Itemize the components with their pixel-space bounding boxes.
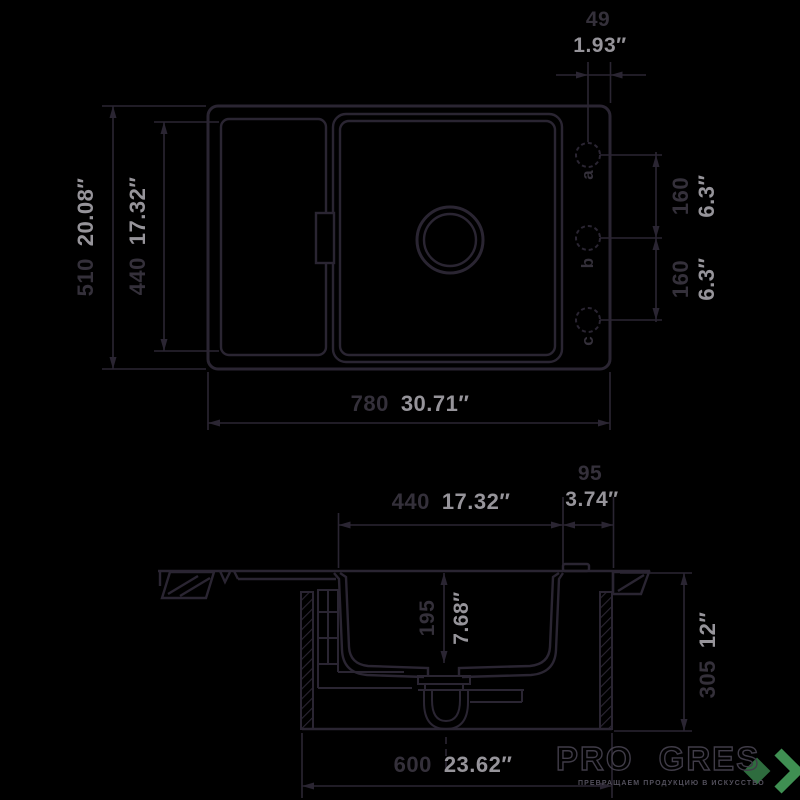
tap-hole-b (576, 226, 600, 250)
ext-lines-305 (614, 573, 692, 731)
drain-trap (418, 668, 524, 729)
dim-195-mm: 195 (411, 591, 445, 644)
dim-305-label: 30512″ (695, 612, 721, 699)
dim-160-bc-mm: 160 (668, 257, 694, 300)
tap-hole-c (576, 308, 600, 332)
drain-circle-outer (417, 207, 483, 273)
sink-outline (208, 106, 610, 369)
dim-600-inch: 23.62″ (444, 752, 513, 777)
dim-305-inch: 12″ (695, 612, 720, 649)
brand-logo-text: PRO GRES (556, 740, 760, 778)
dim-780-inch: 30.71″ (401, 391, 470, 416)
ext-lines-510 (102, 106, 206, 369)
dim-440-section-label: 44017.32″ (392, 489, 511, 515)
plan-view (208, 106, 610, 369)
dim-600-mm: 600 (394, 752, 432, 777)
overflow-tube (318, 590, 412, 688)
tap-hole-a (576, 143, 600, 167)
dim-195-label: 195 7.68″ (411, 591, 479, 644)
dim-600-label: 60023.62″ (394, 752, 513, 778)
dim-160-bc-inch: 6.3″ (694, 257, 720, 300)
dim-49-mm: 49 (586, 8, 610, 32)
dim-95-inch: 3.74″ (565, 488, 618, 512)
overflow-connector (316, 213, 334, 263)
logo-chevron-icon (778, 752, 797, 790)
cabinet-wall-right (600, 592, 612, 729)
tap-hole-b-label: b (578, 258, 598, 268)
dim-440-section-inch: 17.32″ (442, 489, 511, 514)
dim-160-ab-label: 160 6.3″ (668, 174, 720, 217)
drainboard-outline (221, 119, 326, 355)
right-counter-block (613, 572, 649, 594)
dim-160-ab-inch: 6.3″ (694, 174, 720, 217)
drip-groove (220, 571, 230, 582)
dim-160-bc-label: 160 6.3″ (668, 257, 720, 300)
tap-hole-a-label: a (578, 170, 598, 179)
dim-780-mm: 780 (351, 391, 389, 416)
dim-440-plan-inch: 17.32″ (125, 177, 150, 246)
sink-technical-drawing: 49 1.93″ 51020.08″ 44017.32″ 78030.71″ 1… (0, 0, 800, 800)
dim-160-ab-mm: 160 (668, 174, 694, 217)
dim-49-inch: 1.93″ (573, 34, 626, 58)
trap-outer (424, 690, 468, 729)
faucet-boss (563, 564, 589, 571)
brand-tagline: ПРЕВРАЩАЕМ ПРОДУКЦИЮ В ИСКУССТВО (578, 780, 765, 787)
dim-95-mm: 95 (578, 462, 602, 486)
plan-view-arrowheads (110, 72, 660, 427)
cabinet-wall-left (301, 592, 313, 729)
trap-inner (432, 690, 460, 721)
dim-440-plan-mm: 440 (125, 257, 150, 295)
dim-780-label: 78030.71″ (351, 391, 470, 417)
dim-195-inch: 7.68″ (445, 591, 479, 644)
drain-circle-inner (424, 214, 476, 266)
bowl-outline-inner (340, 121, 555, 355)
dim-305-mm: 305 (695, 660, 720, 698)
dim-440-plan-label: 44017.32″ (125, 177, 151, 296)
dim-510-mm: 510 (73, 258, 98, 296)
dim-440-section-mm: 440 (392, 489, 430, 514)
left-counter-block (162, 572, 214, 598)
tap-hole-c-label: c (578, 336, 598, 345)
dim-510-label: 51020.08″ (73, 178, 99, 297)
bowl-outline-outer (333, 114, 562, 362)
dim-510-inch: 20.08″ (73, 178, 98, 247)
